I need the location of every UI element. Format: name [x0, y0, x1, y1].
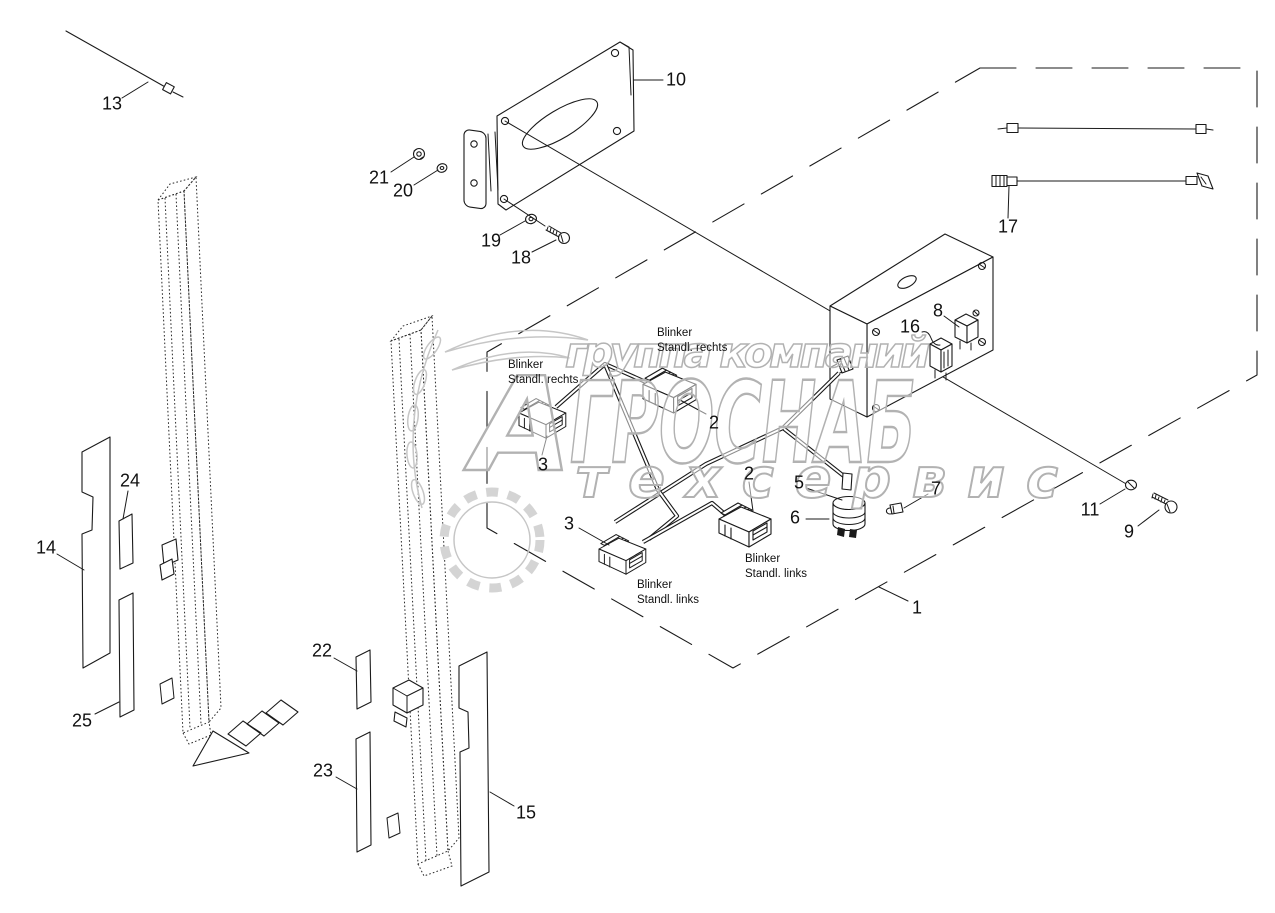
caption-line2: Standl. links — [637, 593, 699, 608]
callout-11: 11 — [1081, 500, 1100, 521]
watermark-row3: техсервис — [576, 447, 1058, 510]
callout-9: 9 — [1124, 522, 1134, 543]
callout-2: 2 — [744, 464, 754, 485]
caption-line2: Standl. rechts — [508, 373, 578, 388]
callout-13: 13 — [102, 94, 122, 115]
callout-16: 16 — [900, 317, 920, 338]
connector-caption: BlinkerStandl. rechts — [508, 358, 578, 388]
callout-22: 22 — [312, 641, 332, 662]
caption-line2: Standl. rechts — [657, 341, 727, 356]
callout-10: 10 — [666, 70, 686, 91]
callout-20: 20 — [393, 181, 413, 202]
caption-line2: Standl. links — [745, 567, 807, 582]
callout-23: 23 — [313, 761, 333, 782]
connector-caption: BlinkerStandl. links — [745, 552, 807, 582]
callout-21: 21 — [369, 168, 389, 189]
callout-25: 25 — [72, 711, 92, 732]
parts-diagram-page: группа компаний А ГРОСНАБ техсервис 1223… — [0, 0, 1275, 913]
watermark-layer: группа компаний А ГРОСНАБ техсервис — [0, 0, 1275, 913]
callout-24: 24 — [120, 471, 140, 492]
connector-caption: BlinkerStandl. rechts — [657, 326, 727, 356]
caption-line1: Blinker — [637, 578, 699, 593]
caption-line1: Blinker — [657, 326, 727, 341]
callout-3: 3 — [538, 455, 548, 476]
callout-14: 14 — [36, 538, 56, 559]
callout-3: 3 — [564, 514, 574, 535]
caption-line1: Blinker — [508, 358, 578, 373]
callout-2: 2 — [709, 413, 719, 434]
caption-line1: Blinker — [745, 552, 807, 567]
callout-1: 1 — [912, 598, 922, 619]
callout-19: 19 — [481, 231, 501, 252]
callout-6: 6 — [790, 508, 800, 529]
callout-15: 15 — [516, 803, 536, 824]
callout-17: 17 — [998, 217, 1018, 238]
callout-5: 5 — [794, 473, 804, 494]
connector-caption: BlinkerStandl. links — [637, 578, 699, 608]
callout-18: 18 — [511, 248, 531, 269]
callout-7: 7 — [931, 479, 941, 500]
callout-8: 8 — [933, 301, 943, 322]
